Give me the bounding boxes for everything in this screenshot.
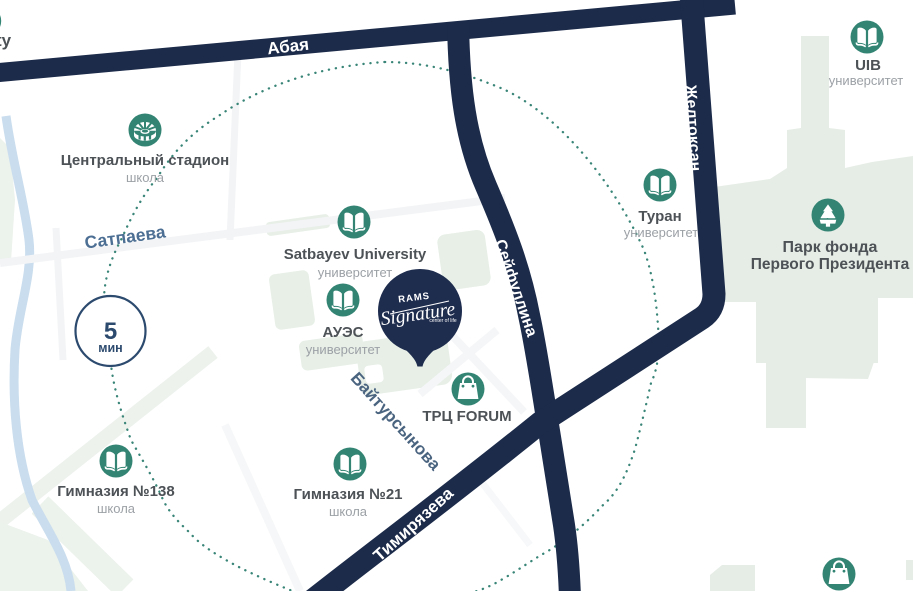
svg-text:Гимназия №138: Гимназия №138 [57,483,174,500]
svg-text:Гимназия №21: Гимназия №21 [293,486,402,503]
svg-text:университет: университет [829,73,904,88]
svg-text:школа: школа [97,501,136,516]
svg-text:center of life: center of life [429,318,456,324]
svg-text:Центральный стадион: Центральный стадион [61,152,229,169]
svg-text:Первого Президента: Первого Президента [751,256,910,273]
svg-text:университет: университет [624,225,699,240]
svg-text:Туран: Туран [638,208,681,225]
svg-text:ТРЦ FORUM: ТРЦ FORUM [422,408,511,425]
svg-text:UIB: UIB [855,57,881,74]
svg-text:университет: университет [318,265,393,280]
svg-text:АУЭС: АУЭС [323,324,364,341]
svg-text:Парк фонда: Парк фонда [783,239,878,256]
svg-text:мин: мин [98,341,122,355]
svg-text:Satbayev University: Satbayev University [284,246,427,263]
svg-text:ty: ty [0,31,12,50]
svg-text:школа: школа [126,170,165,185]
svg-text:университет: университет [306,342,381,357]
svg-text:школа: школа [329,504,368,519]
